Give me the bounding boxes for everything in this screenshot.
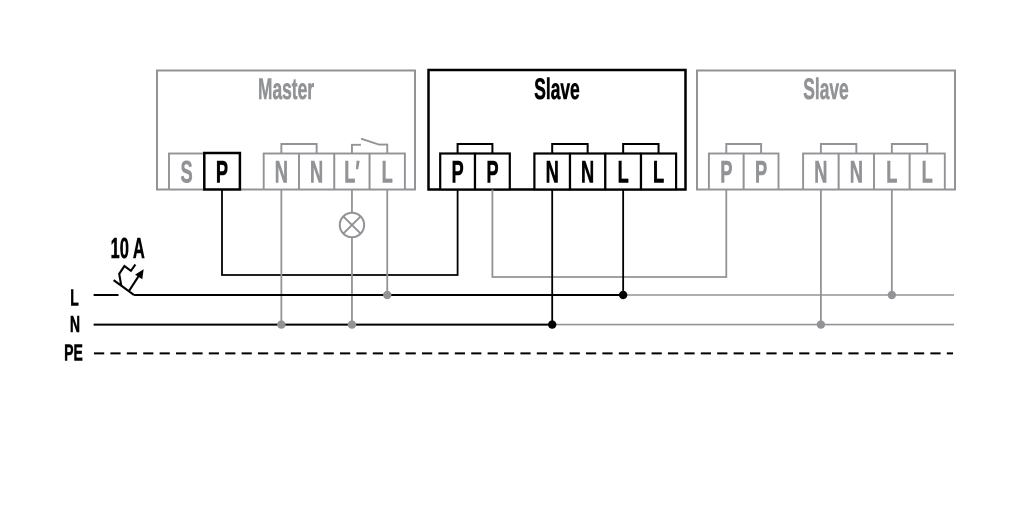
- svg-text:P: P: [452, 156, 464, 190]
- svg-text:P: P: [216, 156, 228, 190]
- svg-text:PE: PE: [64, 340, 83, 367]
- svg-text:N: N: [70, 311, 80, 338]
- svg-text:L′: L′: [344, 156, 360, 190]
- svg-text:L: L: [922, 156, 933, 190]
- svg-text:S: S: [181, 156, 193, 190]
- svg-text:P: P: [486, 156, 498, 190]
- svg-text:L: L: [70, 285, 79, 312]
- svg-text:L: L: [618, 156, 629, 190]
- svg-text:Slave: Slave: [534, 73, 579, 106]
- svg-text:N: N: [275, 156, 288, 190]
- svg-text:P: P: [755, 156, 767, 190]
- svg-text:N: N: [581, 156, 594, 190]
- svg-text:10 A: 10 A: [111, 233, 145, 265]
- svg-text:L: L: [886, 156, 897, 190]
- svg-text:N: N: [814, 156, 827, 190]
- svg-text:N: N: [546, 156, 559, 190]
- svg-text:N: N: [850, 156, 863, 190]
- svg-text:L: L: [653, 156, 664, 190]
- svg-text:Master: Master: [258, 73, 314, 106]
- svg-text:N: N: [310, 156, 323, 190]
- svg-text:P: P: [720, 156, 732, 190]
- svg-text:L: L: [382, 156, 393, 190]
- svg-text:Slave: Slave: [803, 73, 848, 106]
